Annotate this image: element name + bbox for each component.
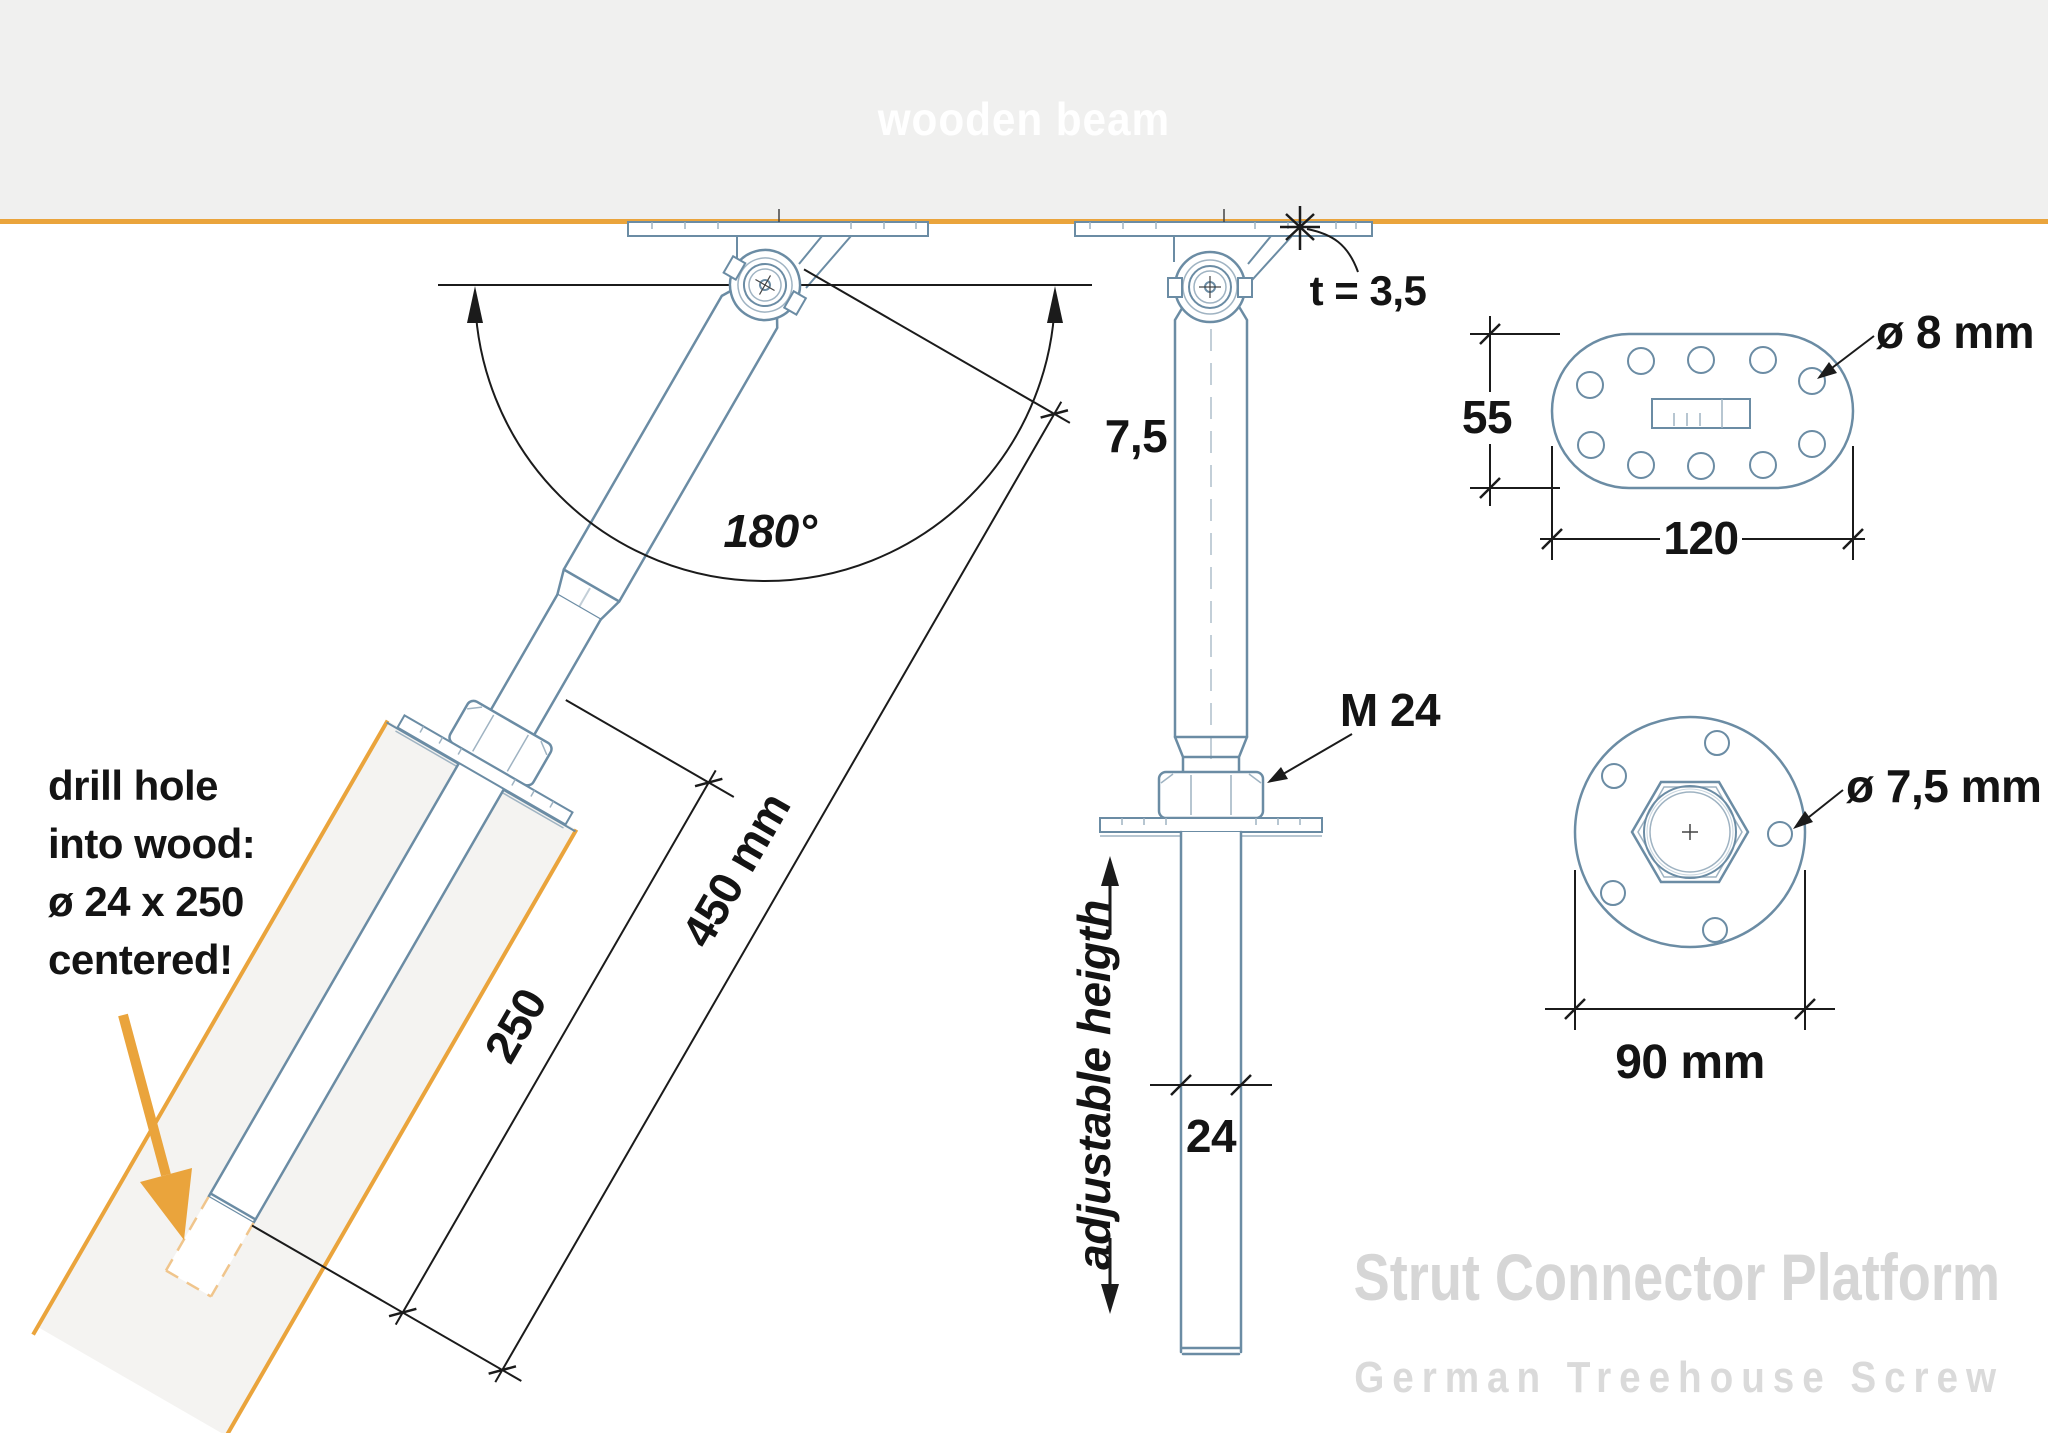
technical-drawing-page: wooden beam <box>0 0 2048 1433</box>
plate-thickness-label: t = 3,5 <box>1310 267 1427 314</box>
hole-8mm-callout: ø 8 mm <box>1817 306 2034 379</box>
strut-connector-drawing: 250 450 mm 180° drill hole into wood: ø … <box>0 0 2048 1433</box>
dim-24-label: 24 <box>1186 1110 1237 1162</box>
drawing-subtitle: German Treehouse Screw <box>1354 1352 2004 1402</box>
drill-note-line4: centered! <box>48 936 233 983</box>
thread-callout: M 24 <box>1267 684 1441 783</box>
plate-top-view-drawing: 55 120 ø 8 mm <box>1462 306 2034 564</box>
angle-label: 180° <box>723 505 817 557</box>
title-block: Strut Connector Platform German Treehous… <box>1354 1240 2004 1402</box>
front-hex-nut <box>1159 772 1263 818</box>
stadium-center-slot <box>1652 399 1750 428</box>
offset-label: 7,5 <box>1105 410 1167 462</box>
drill-note-line3: ø 24 x 250 <box>48 878 244 925</box>
adjustable-height-label: adjustable heigth <box>1068 900 1120 1270</box>
side-view-plate <box>628 222 928 236</box>
drawing-title: Strut Connector Platform <box>1354 1240 2000 1314</box>
arc-arrow-right <box>1047 286 1063 323</box>
front-view-plate <box>1075 222 1372 236</box>
dim-55: 55 <box>1462 316 1560 506</box>
front-washer <box>1100 818 1322 832</box>
dim-120-label: 120 <box>1663 512 1738 564</box>
drill-note-line2: into wood: <box>48 820 255 867</box>
side-view-strut-assembly: 250 450 mm <box>33 190 1080 1433</box>
thread-label: M 24 <box>1340 684 1441 736</box>
arc-arrow-left <box>467 286 483 323</box>
hole-8mm-label: ø 8 mm <box>1876 306 2034 358</box>
dim-90mm-label: 90 mm <box>1615 1036 1765 1089</box>
adjustable-height-annotation: adjustable heigth <box>1068 856 1120 1314</box>
front-view-drawing: t = 3,5 7,5 M 24 adjustable heigth <box>1068 206 1441 1354</box>
hole-7-5mm-label: ø 7,5 mm <box>1846 760 2041 812</box>
side-view-drawing: 250 450 mm 180° <box>33 190 1092 1433</box>
hole-7-5mm-callout: ø 7,5 mm <box>1793 760 2041 829</box>
dim-250-label: 250 <box>474 980 557 1071</box>
dim-55-label: 55 <box>1462 391 1512 443</box>
drill-note-line1: drill hole <box>48 762 218 809</box>
front-rod-fill <box>1181 832 1241 1352</box>
dim-450-label: 450 mm <box>671 784 800 956</box>
flange-view-drawing: ø 7,5 mm 90 mm <box>1545 717 2041 1089</box>
